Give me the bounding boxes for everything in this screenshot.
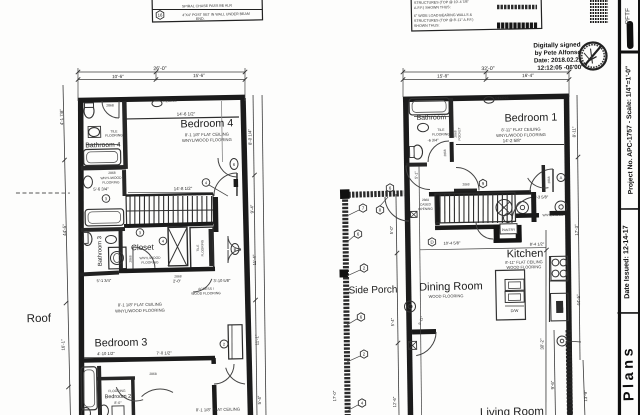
svg-text:POCKET: POCKET xyxy=(457,127,461,140)
svg-text:5'-1": 5'-1" xyxy=(414,171,418,179)
svg-text:8'-11": 8'-11" xyxy=(571,126,576,137)
svg-text:2868: 2868 xyxy=(547,176,551,183)
svg-text:Bedroom 1: Bedroom 1 xyxy=(504,112,557,125)
svg-text:17'-3": 17'-3" xyxy=(574,224,579,236)
svg-text:10'-6": 10'-6" xyxy=(112,74,124,79)
svg-text:7'-0 1/2": 7'-0 1/2" xyxy=(156,350,172,355)
svg-text:15'-6": 15'-6" xyxy=(193,73,205,78)
svg-text:D/W: D/W xyxy=(511,308,519,313)
svg-text:WNYL/WOOD FLOORING: WNYL/WOOD FLOORING xyxy=(182,137,232,143)
svg-text:5'-1 3/4": 5'-1 3/4" xyxy=(97,278,112,283)
svg-text:9'-6": 9'-6" xyxy=(550,380,555,389)
svg-text:Plans: Plans xyxy=(620,345,637,401)
svg-text:FLOORING: FLOORING xyxy=(141,260,159,264)
svg-text:2868: 2868 xyxy=(128,255,132,262)
svg-text:5'-4": 5'-4" xyxy=(257,395,262,404)
svg-text:TILE: TILE xyxy=(196,245,200,252)
svg-text:WNYL/WOOD FLOORING: WNYL/WOOD FLOORING xyxy=(115,308,165,314)
svg-text:Bedroom 3: Bedroom 3 xyxy=(94,336,147,349)
svg-text:RECESS: RECESS xyxy=(495,96,508,100)
svg-text:Bathroom 3: Bathroom 3 xyxy=(97,236,104,266)
svg-text:2868: 2868 xyxy=(462,182,469,186)
svg-text:5'-6 3/4": 5'-6 3/4" xyxy=(93,186,109,191)
svg-text:9'-4": 9'-4" xyxy=(249,204,254,213)
svg-text:A: A xyxy=(560,175,563,180)
svg-text:REF: REF xyxy=(560,306,564,312)
svg-text:A.F.F.) SHOWN THUS:: A.F.F.) SHOWN THUS: xyxy=(414,5,451,10)
svg-text:Bathroom: Bathroom xyxy=(417,114,447,122)
svg-text:D: D xyxy=(430,240,433,245)
svg-text:FLOORING: FLOORING xyxy=(102,180,120,184)
svg-text:14'-6 1/2": 14'-6 1/2" xyxy=(177,111,196,116)
svg-text:Date Issued: 12-14-17: Date Issued: 12-14-17 xyxy=(621,225,631,299)
svg-text:WOOD FLOORING: WOOD FLOORING xyxy=(506,264,541,270)
svg-text:8'-4 1/2": 8'-4 1/2" xyxy=(530,241,545,246)
svg-text:FLOORING: FLOORING xyxy=(432,132,450,136)
svg-text:17'-0": 17'-0" xyxy=(332,390,337,401)
svg-text:2868: 2868 xyxy=(106,103,114,107)
svg-text:16'-4": 16'-4" xyxy=(522,73,534,78)
svg-text:44'-5": 44'-5" xyxy=(62,224,67,236)
svg-text:26'-0": 26'-0" xyxy=(153,66,166,72)
svg-text:8'-3 5/8": 8'-3 5/8" xyxy=(534,194,549,199)
svg-text:3'-10 5/8": 3'-10 5/8" xyxy=(213,278,231,283)
svg-text:5'-0": 5'-0" xyxy=(389,225,394,234)
svg-text:4'-1 7/8": 4'-1 7/8" xyxy=(59,109,64,126)
svg-text:Bedroom 4: Bedroom 4 xyxy=(180,117,233,130)
svg-text:2868: 2868 xyxy=(422,198,429,202)
svg-text:B: B xyxy=(234,247,237,252)
svg-text:Dining Room: Dining Room xyxy=(419,280,483,293)
svg-text:13'-9": 13'-9" xyxy=(583,390,588,402)
svg-text:2868: 2868 xyxy=(443,149,447,156)
svg-text:11'-1": 11'-1" xyxy=(254,334,259,345)
svg-text:-6 3/4": -6 3/4" xyxy=(427,138,439,142)
svg-text:10'-4 5/8": 10'-4 5/8" xyxy=(443,240,461,245)
svg-text:Roof: Roof xyxy=(27,313,52,326)
svg-text:END.: END. xyxy=(196,17,205,21)
svg-text:PFTF: PFTF xyxy=(624,8,631,24)
svg-text:44'-5": 44'-5" xyxy=(576,294,581,306)
svg-text:32'-0": 32'-0" xyxy=(481,66,494,72)
svg-text:8'-0 1/4": 8'-0 1/4" xyxy=(247,128,252,145)
svg-text:16'-1": 16'-1" xyxy=(60,339,65,351)
svg-text:FLOORING: FLOORING xyxy=(105,133,123,137)
svg-text:FLOORING: FLOORING xyxy=(200,239,204,256)
svg-text:8'-1 1/8" FLAT CEILING: 8'-1 1/8" FLAT CEILING xyxy=(196,407,240,413)
svg-text:Living Room: Living Room xyxy=(480,406,544,415)
svg-text:12'-6": 12'-6" xyxy=(392,396,397,407)
svg-text:16: 16 xyxy=(158,13,164,18)
svg-text:12:12:05 -06'00': 12:12:05 -06'00' xyxy=(537,64,583,72)
svg-text:SHOWN THUS:: SHOWN THUS: xyxy=(414,23,440,28)
svg-text:14'-2 5/8": 14'-2 5/8" xyxy=(503,138,522,143)
svg-text:8'-1 1/8" FLAT CEILING: 8'-1 1/8" FLAT CEILING xyxy=(118,302,162,308)
svg-text:Side Porch: Side Porch xyxy=(348,284,397,296)
svg-text:15'-8": 15'-8" xyxy=(437,73,449,78)
svg-text:2'-0": 2'-0" xyxy=(173,278,182,283)
svg-text:WOOD FLOORING: WOOD FLOORING xyxy=(429,293,464,299)
svg-text:2868: 2868 xyxy=(108,171,116,175)
svg-text:14'-8 1/2": 14'-8 1/2" xyxy=(174,186,193,191)
svg-text:RECESS: RECESS xyxy=(163,99,176,103)
svg-text:Bathroom 4: Bathroom 4 xyxy=(85,142,120,150)
svg-text:4'-10 1/2": 4'-10 1/2" xyxy=(97,351,115,356)
svg-text:5'-4": 5'-4" xyxy=(390,317,395,326)
svg-text:30'-2": 30'-2" xyxy=(539,338,544,350)
svg-text:8'-0": 8'-0" xyxy=(114,401,122,405)
svg-text:OPENING: OPENING xyxy=(418,207,433,211)
svg-text:11'-4": 11'-4" xyxy=(252,254,257,265)
svg-text:2868: 2868 xyxy=(149,372,157,376)
svg-text:PANTRY: PANTRY xyxy=(502,228,516,232)
